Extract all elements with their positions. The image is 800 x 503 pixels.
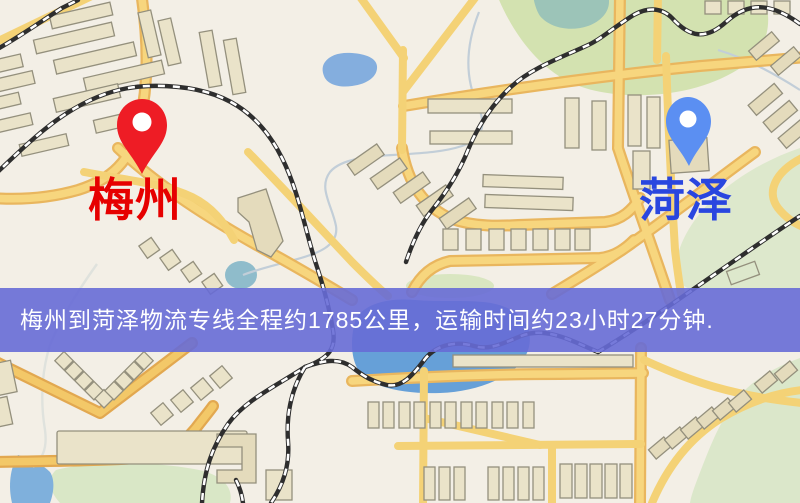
heze-label: 菏泽: [639, 177, 733, 223]
route-info-banner: 梅州到菏泽物流专线全程约1785公里，运输时间约23小时27分钟.: [0, 288, 800, 352]
heze-pin-hole: [680, 111, 697, 128]
meizhou-label: 梅州: [88, 177, 182, 223]
map-screenshot: 梅州到菏泽物流专线全程约1785公里，运输时间约23小时27分钟. 梅州 菏泽: [0, 0, 800, 503]
map-canvas: [0, 0, 800, 503]
meizhou-pin-hole: [133, 113, 152, 132]
route-info-text: 梅州到菏泽物流专线全程约1785公里，运输时间约23小时27分钟.: [20, 307, 714, 333]
